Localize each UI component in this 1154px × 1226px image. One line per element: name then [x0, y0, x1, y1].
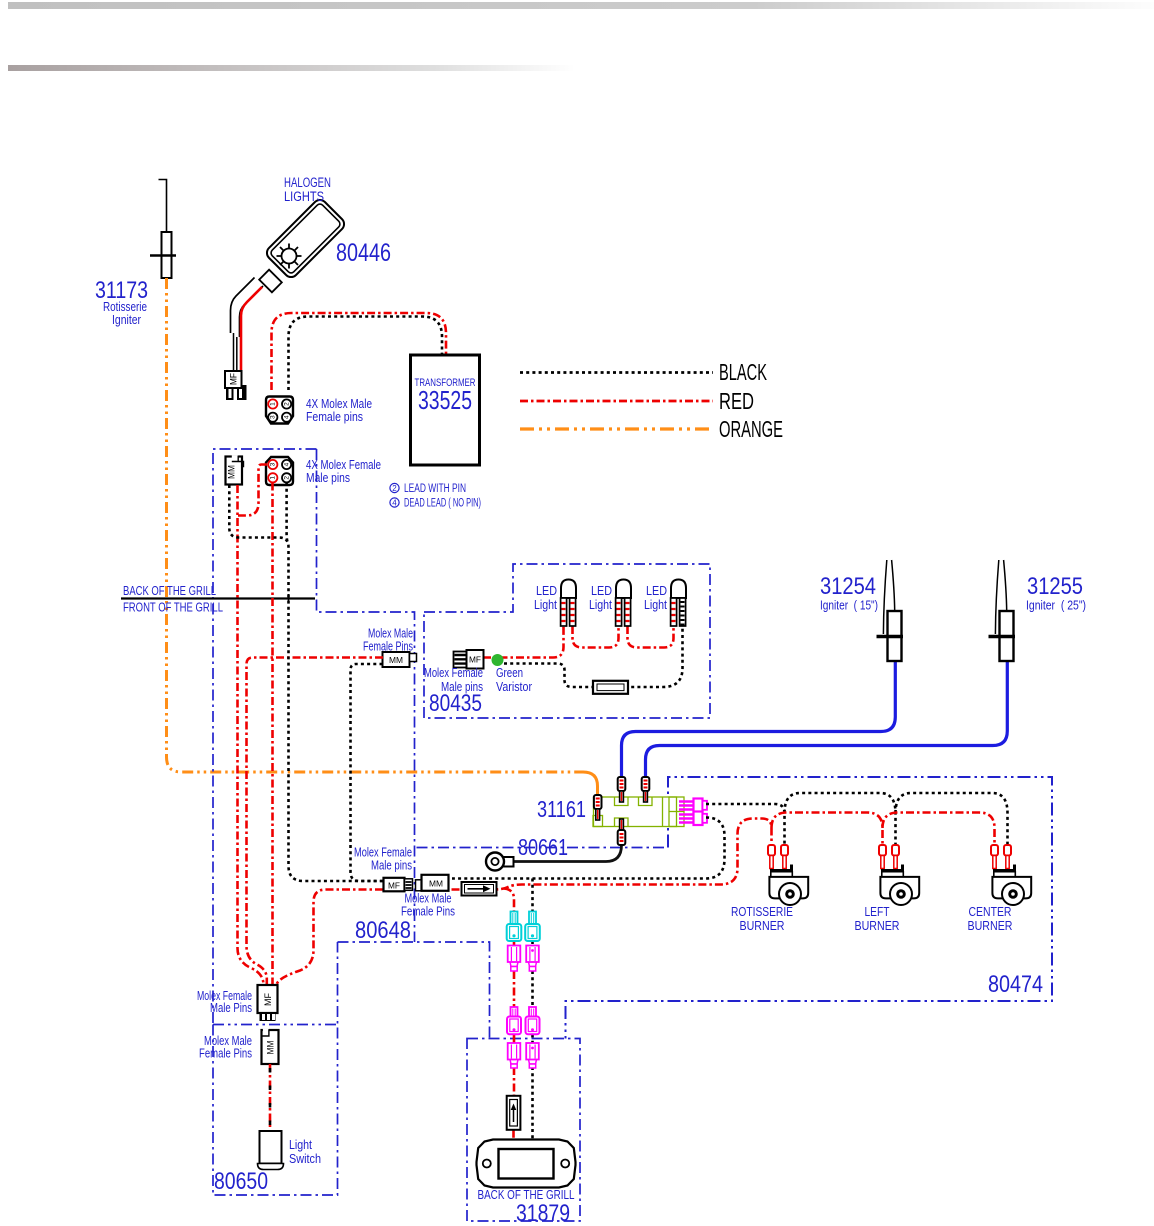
svg-text:Light: Light [644, 598, 667, 612]
svg-text:Switch: Switch [289, 1152, 321, 1166]
svg-text:80435: 80435 [429, 690, 482, 717]
svg-text:BLACK: BLACK [719, 359, 767, 385]
svg-text:1: 1 [270, 476, 277, 480]
svg-text:31161: 31161 [537, 796, 586, 822]
svg-text:31255: 31255 [1027, 573, 1083, 600]
svg-text:2: 2 [283, 476, 290, 480]
svg-text:MM: MM [227, 465, 237, 479]
svg-text:31879: 31879 [516, 1200, 570, 1226]
svg-text:Female Pins: Female Pins [363, 640, 413, 654]
svg-text:80661: 80661 [518, 834, 568, 860]
svg-text:Molex Male: Molex Male [405, 892, 452, 906]
svg-text:Igniter ( 15"): Igniter ( 15") [820, 599, 878, 613]
svg-text:Female pins: Female pins [306, 409, 363, 424]
svg-text:4: 4 [392, 499, 397, 508]
svg-text:1: 1 [270, 402, 277, 406]
svg-text:BURNER: BURNER [855, 919, 900, 933]
svg-text:Light: Light [589, 598, 612, 612]
svg-text:LED: LED [536, 584, 557, 598]
svg-text:Green: Green [496, 666, 523, 680]
svg-text:ORANGE: ORANGE [719, 416, 783, 442]
svg-text:ROTISSERIE: ROTISSERIE [731, 905, 793, 919]
svg-text:HALOGEN: HALOGEN [284, 175, 331, 190]
svg-text:BACK OF THE GRILL: BACK OF THE GRILL [123, 584, 216, 598]
svg-text:Male pins: Male pins [371, 859, 412, 873]
svg-text:Molex Male: Molex Male [368, 627, 413, 641]
svg-text:MF: MF [263, 993, 273, 1006]
svg-text:2: 2 [392, 484, 397, 493]
svg-text:Varistor: Varistor [496, 680, 532, 694]
svg-text:LIGHTS: LIGHTS [284, 189, 324, 204]
svg-text:CENTER: CENTER [969, 905, 1012, 919]
svg-text:Igniter ( 25"): Igniter ( 25") [1026, 599, 1086, 613]
svg-text:FRONT OF THE GRILL: FRONT OF THE GRILL [123, 601, 223, 615]
svg-text:4: 4 [283, 415, 290, 419]
svg-text:3: 3 [270, 415, 277, 419]
svg-text:MF: MF [469, 655, 481, 665]
svg-text:80474: 80474 [988, 971, 1043, 998]
svg-text:31254: 31254 [820, 573, 876, 600]
svg-text:BURNER: BURNER [968, 919, 1013, 933]
svg-text:RED: RED [719, 388, 754, 414]
svg-text:Female Pins: Female Pins [199, 1047, 252, 1061]
svg-text:Molex Female: Molex Female [424, 666, 483, 680]
svg-text:Igniter: Igniter [112, 312, 142, 327]
svg-text:LED: LED [646, 584, 667, 598]
svg-text:80650: 80650 [214, 1168, 268, 1195]
svg-text:MF: MF [388, 881, 400, 891]
svg-text:80446: 80446 [336, 239, 391, 267]
svg-text:2: 2 [283, 402, 290, 406]
svg-text:Male Pins: Male Pins [210, 1001, 252, 1015]
svg-text:BURNER: BURNER [740, 919, 785, 933]
svg-text:80648: 80648 [355, 917, 411, 944]
svg-text:3: 3 [270, 462, 277, 466]
svg-text:LED: LED [591, 584, 612, 598]
svg-text:Light: Light [534, 598, 557, 612]
svg-text:Male pins: Male pins [306, 470, 350, 485]
svg-text:4: 4 [283, 462, 290, 466]
svg-text:LEAD WITH PIN: LEAD WITH PIN [404, 483, 466, 495]
svg-text:MF: MF [229, 373, 239, 385]
svg-text:MM: MM [266, 1041, 276, 1055]
svg-text:Light: Light [289, 1138, 312, 1152]
svg-text:Molex Female: Molex Female [354, 846, 412, 860]
svg-text:33525: 33525 [418, 385, 472, 415]
svg-text:MM: MM [429, 879, 443, 889]
svg-text:LEFT: LEFT [865, 905, 890, 919]
svg-text:DEAD LEAD ( NO PIN): DEAD LEAD ( NO PIN) [404, 498, 481, 510]
svg-text:MM: MM [389, 655, 403, 665]
